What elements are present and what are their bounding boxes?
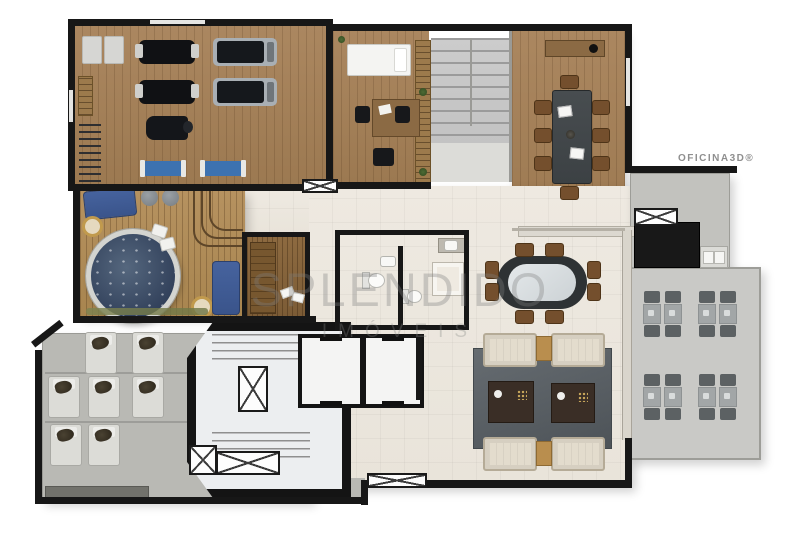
- patio-table: [698, 304, 716, 324]
- meeting-chair: [592, 128, 610, 143]
- patio-table: [698, 387, 716, 407]
- upper-wall-top: [333, 24, 632, 31]
- gold-side-table: [536, 336, 552, 361]
- floor-plan-canvas: OFICINA3D® SPLENDIDO IMÓVEIS: [0, 0, 800, 533]
- shower-stall: [432, 262, 464, 296]
- patio-chair: [644, 325, 660, 337]
- elevator-wall-stub: [416, 334, 422, 400]
- patio-chair: [644, 374, 660, 386]
- sun-lounger: [132, 332, 164, 374]
- meeting-chair: [534, 128, 552, 143]
- bathroom-wall-right: [464, 230, 469, 330]
- meeting-chair: [592, 100, 610, 115]
- service-shaft: [189, 445, 217, 475]
- elevator: [362, 334, 424, 408]
- hall-wall-right-low: [625, 438, 632, 488]
- sauna-bench: [250, 242, 276, 314]
- sun-lounger: [132, 376, 164, 418]
- gym-wall-right: [326, 19, 333, 191]
- dining-chair: [587, 283, 601, 301]
- round-side-table: [82, 216, 103, 237]
- sun-lounger: [50, 424, 82, 466]
- patio-chair: [720, 408, 736, 420]
- meeting-chair: [560, 186, 579, 200]
- massage-bed: [347, 44, 411, 76]
- exercise-bike: [146, 116, 188, 140]
- upper-stair-landing: [431, 143, 510, 182]
- toilet-bowl: [407, 290, 422, 303]
- lounge-sofa: [551, 437, 605, 471]
- lounge-sofa: [551, 333, 605, 367]
- office-chair: [373, 148, 394, 166]
- meeting-wall-left: [509, 31, 512, 182]
- patio-table: [664, 304, 682, 324]
- sun-lounger: [88, 376, 120, 418]
- patio-table: [719, 304, 737, 324]
- weight-bench-machine: [139, 40, 195, 64]
- dining-chair: [545, 310, 564, 324]
- pouf: [162, 189, 179, 206]
- deck-wall-bottom: [73, 316, 316, 323]
- terrace-rail: [45, 421, 187, 423]
- dining-chair: [515, 243, 534, 257]
- patio-table: [643, 387, 661, 407]
- lounge-sofa: [483, 437, 537, 471]
- office-chair: [395, 106, 410, 123]
- office-chair: [355, 106, 370, 123]
- treadmill: [213, 38, 277, 66]
- changing-corridor-floor: [245, 191, 309, 233]
- coffee-table: [551, 383, 595, 423]
- patio-chair: [665, 325, 681, 337]
- gym-mat: [82, 36, 102, 64]
- gym-mat: [104, 36, 124, 64]
- meeting-table-plant: [566, 130, 575, 139]
- stair-divider: [470, 38, 472, 126]
- laptop: [557, 105, 572, 118]
- office-wall-bottom: [333, 182, 431, 189]
- weight-bench-machine: [139, 80, 195, 104]
- dining-chair: [587, 261, 601, 279]
- meeting-chair: [534, 156, 552, 171]
- patio-table: [719, 387, 737, 407]
- bbq-grill: [634, 208, 678, 226]
- treadmill: [213, 78, 277, 106]
- gym-wall-bottom: [68, 184, 332, 191]
- service-shaft: [367, 473, 427, 488]
- pouf: [141, 189, 158, 206]
- gold-side-table: [536, 441, 552, 466]
- bbq-sink: [700, 246, 728, 268]
- patio-chair: [699, 325, 715, 337]
- sauna-wall-top: [242, 232, 310, 237]
- laptop: [569, 147, 584, 159]
- patio-table-set: [643, 291, 682, 337]
- vanity-sink: [444, 240, 458, 251]
- coffee-table: [488, 381, 534, 423]
- sauna-wall-left: [242, 232, 247, 321]
- gym-bench-blue: [203, 161, 243, 176]
- plant: [419, 88, 427, 96]
- elevator: [298, 334, 364, 408]
- gym-bench-blue: [143, 161, 183, 176]
- stair-shaft: [238, 366, 268, 412]
- lounge-sofa: [483, 333, 537, 367]
- meeting-window-right: [626, 58, 630, 106]
- meeting-chair: [534, 100, 552, 115]
- patio-table: [643, 304, 661, 324]
- meeting-floor-edge: [512, 228, 625, 231]
- patio-table-set: [698, 291, 737, 337]
- dining-chair: [515, 310, 534, 324]
- meeting-sideboard: [545, 40, 605, 57]
- dining-chair: [545, 243, 564, 257]
- gym-window-left: [69, 90, 73, 122]
- sun-lounger: [85, 332, 117, 374]
- bathroom-wall-middle: [398, 246, 403, 330]
- patio-chair: [699, 408, 715, 420]
- patio-chair: [699, 374, 715, 386]
- patio-table-set: [698, 374, 737, 420]
- sun-lounger: [88, 424, 120, 466]
- patio-chair: [665, 408, 681, 420]
- meeting-chair: [592, 156, 610, 171]
- stair-treads-upper: [212, 334, 310, 366]
- bathroom-wall-left: [335, 230, 340, 330]
- service-shaft: [216, 451, 280, 475]
- bbq-wall-top: [625, 166, 737, 173]
- patio-chair: [720, 291, 736, 303]
- lounger-blue: [212, 261, 240, 315]
- plant: [338, 36, 345, 43]
- patio-chair: [665, 374, 681, 386]
- sauna-wall-right: [305, 232, 310, 321]
- patio-chair: [644, 291, 660, 303]
- meeting-chair: [560, 75, 579, 89]
- deck-steps: [209, 191, 243, 231]
- hall-patio-divider: [622, 230, 632, 440]
- oval-dining-table: [497, 256, 587, 309]
- bathroom-sink: [380, 256, 396, 267]
- patio-table: [664, 387, 682, 407]
- grass-strip: [86, 308, 208, 315]
- dumbbell-rack: [79, 122, 101, 182]
- terrace-wall-bottom: [35, 497, 368, 504]
- terrace-wall-left: [35, 350, 42, 504]
- patio-chair: [644, 408, 660, 420]
- patio-chair: [699, 291, 715, 303]
- sun-lounger: [48, 376, 80, 418]
- gym-window: [150, 20, 205, 24]
- patio-chair: [665, 291, 681, 303]
- bathroom-wall-top: [335, 230, 469, 235]
- plant: [419, 168, 427, 176]
- bbq-counter: [634, 222, 700, 268]
- dining-chair: [485, 283, 499, 301]
- wall-bars: [78, 76, 93, 116]
- studio-credit-label: OFICINA3D®: [678, 153, 754, 164]
- deck-wall-left: [73, 191, 80, 323]
- service-shaft: [302, 179, 338, 193]
- toilet-bowl: [368, 273, 385, 288]
- patio-chair: [720, 374, 736, 386]
- patio-chair: [720, 325, 736, 337]
- dining-chair: [485, 261, 499, 279]
- patio-table-set: [643, 374, 682, 420]
